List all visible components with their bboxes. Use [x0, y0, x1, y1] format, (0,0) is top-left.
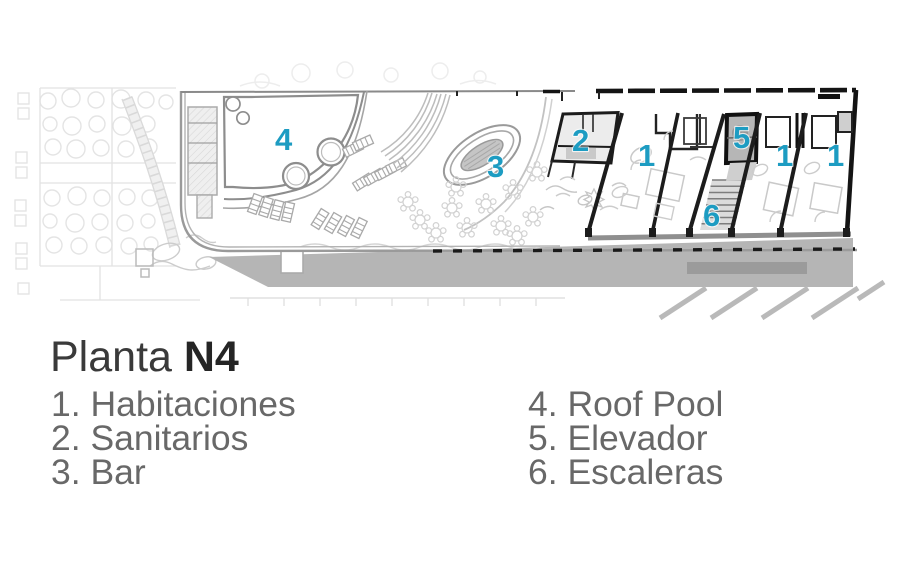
svg-text:3: 3: [487, 149, 504, 184]
svg-text:Planta N4: Planta N4: [50, 333, 239, 381]
svg-text:6. Escaleras: 6. Escaleras: [528, 452, 723, 492]
svg-text:1: 1: [776, 138, 793, 173]
svg-text:6: 6: [703, 198, 720, 233]
svg-text:2: 2: [572, 123, 589, 158]
svg-text:4: 4: [275, 122, 293, 157]
svg-text:1: 1: [638, 138, 655, 173]
svg-text:1: 1: [827, 138, 844, 173]
svg-text:5: 5: [733, 120, 750, 155]
svg-text:3. Bar: 3. Bar: [51, 452, 146, 492]
